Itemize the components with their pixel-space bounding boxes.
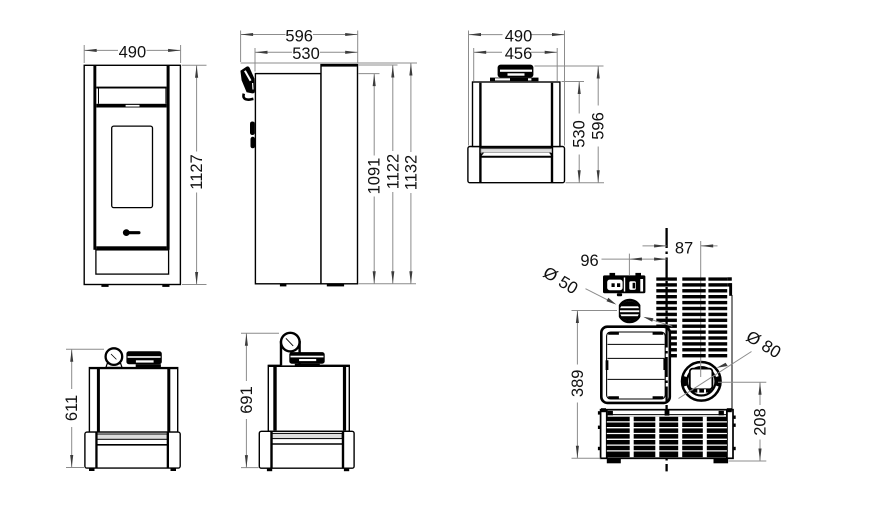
svg-text:691: 691: [238, 386, 256, 414]
svg-text:1127: 1127: [188, 154, 206, 189]
svg-text:490: 490: [505, 28, 533, 46]
svg-text:456: 456: [505, 45, 533, 63]
svg-text:596: 596: [590, 112, 608, 140]
svg-text:1132: 1132: [402, 155, 420, 190]
svg-text:87: 87: [675, 240, 693, 258]
svg-text:530: 530: [571, 120, 589, 148]
svg-text:530: 530: [292, 45, 320, 63]
svg-text:490: 490: [119, 43, 147, 61]
svg-text:596: 596: [285, 27, 313, 45]
svg-text:611: 611: [63, 395, 81, 421]
svg-text:96: 96: [580, 252, 598, 270]
svg-text:1091: 1091: [366, 158, 384, 195]
svg-text:208: 208: [752, 408, 770, 436]
svg-text:1122: 1122: [384, 154, 402, 189]
svg-text:389: 389: [569, 370, 587, 398]
